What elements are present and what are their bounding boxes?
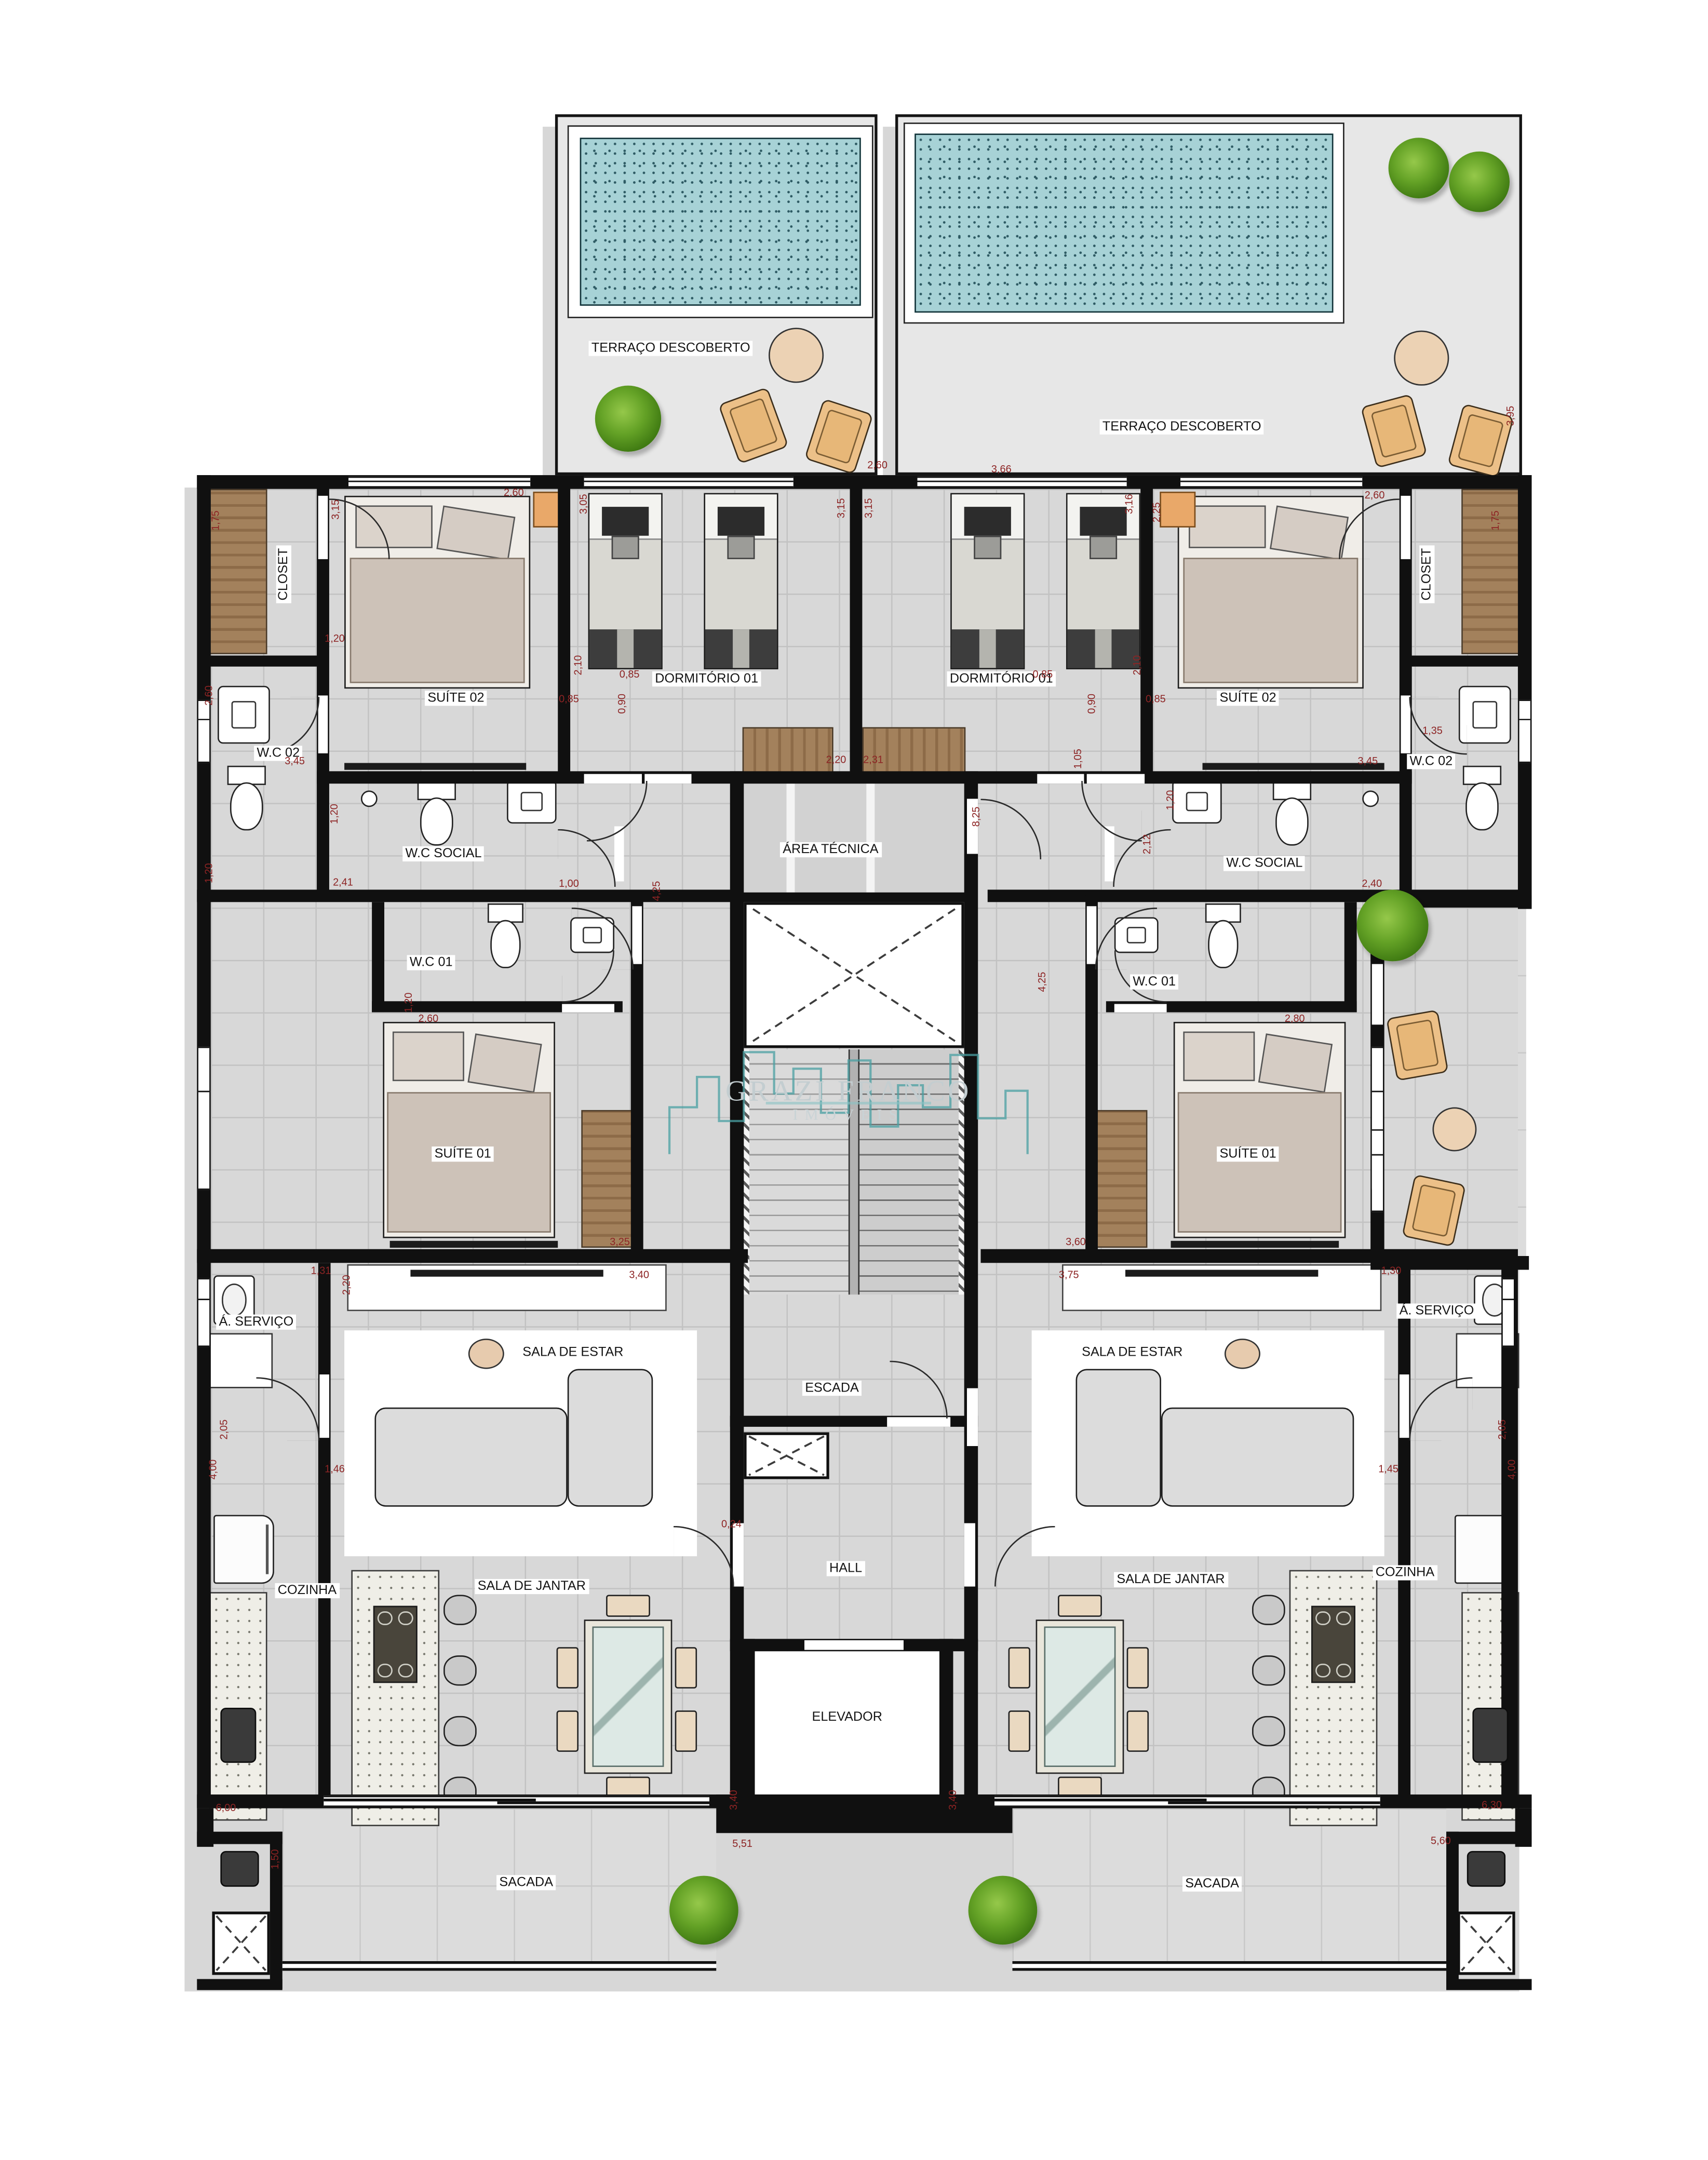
dimension-label: 2,05 (1497, 1420, 1508, 1440)
fridge-icon (213, 1515, 274, 1584)
wall-segment (1140, 485, 1153, 781)
stool-icon (1252, 1595, 1285, 1625)
dimension-label: 3,16 (1124, 494, 1135, 514)
room-label-aservico-right: Á. SERVIÇO (1396, 1303, 1476, 1318)
tv-icon (1125, 1270, 1318, 1277)
room-label-escada: ESCADA (802, 1381, 862, 1396)
dimension-label: 2,20 (826, 755, 846, 766)
wardrobe-icon (1092, 1110, 1147, 1248)
door-gap (318, 695, 328, 753)
ottoman-icon (1225, 1339, 1260, 1369)
dimension-label: 3,60 (1066, 1237, 1086, 1248)
dining-table-icon (584, 1619, 673, 1774)
kitchen-counter (209, 1592, 267, 1820)
dimension-label: 0,85 (1032, 669, 1053, 680)
dimension-label: 2,60 (867, 460, 887, 471)
door-gap (1401, 496, 1410, 559)
plant-icon (1357, 889, 1429, 961)
dimension-label: 1,35 (1422, 726, 1443, 737)
dimension-label: 3,15 (864, 498, 875, 518)
sofa-icon (1076, 1369, 1161, 1506)
door-gap (562, 1004, 614, 1013)
dimension-label: 1,75 (1490, 510, 1501, 531)
double-bed-icon (1174, 1022, 1346, 1238)
door-gap (964, 1523, 975, 1587)
dimension-label: 1,05 (1073, 749, 1084, 769)
wall-segment (981, 1249, 1518, 1263)
room-label-elevador: ELEVADOR (809, 1710, 885, 1725)
wall-segment (850, 485, 863, 781)
dimension-label: 3,40 (729, 1790, 739, 1810)
door-gap (1401, 695, 1410, 753)
wall-segment (318, 1263, 331, 1800)
dimension-label: 3,15 (836, 498, 847, 518)
dimension-label: 2,60 (504, 488, 524, 498)
dimension-label: 3,15 (331, 500, 342, 520)
dimension-label: 1,20 (404, 993, 414, 1013)
wall-segment (207, 656, 324, 667)
room-label-wcsocial-right: W.C SOCIAL (1223, 856, 1306, 871)
room-label-terraco-left: TERRAÇO DESCOBERTO (589, 341, 753, 356)
dining-chair-icon (606, 1595, 650, 1616)
watermark-line2: IMÓVEIS (658, 1108, 1039, 1124)
wall-segment (738, 893, 970, 902)
window (1503, 1278, 1514, 1347)
sofa-icon (568, 1369, 653, 1506)
floor-plan-page: GRAZI FRANCO IMÓVEIS TERRAÇO DESCOBERTOT… (0, 0, 1708, 2159)
sofa-icon (374, 1408, 567, 1507)
toilet-icon (223, 766, 270, 832)
room-label-closet-left: CLOSET (276, 545, 291, 603)
room-label-wc02-right: W.C 02 (1407, 754, 1455, 769)
stool-icon (1252, 1655, 1285, 1685)
window (198, 1278, 209, 1347)
dimension-label: 3,75 (1059, 1270, 1079, 1281)
single-bed-icon (588, 493, 663, 670)
door-gap (1105, 826, 1114, 881)
dimension-label: 0,85 (559, 694, 579, 705)
shower-icon (1362, 790, 1379, 807)
dimension-label: 4,25 (1037, 972, 1048, 992)
dimension-label: 0,85 (1146, 694, 1166, 705)
dimension-label: 3,40 (948, 1790, 959, 1810)
duct-shaft (212, 1912, 270, 1975)
dimension-label: 0,90 (1087, 694, 1098, 714)
dimension-label: 1,20 (1165, 790, 1176, 811)
room-label-suite02-right: SUÍTE 02 (1217, 691, 1279, 706)
dining-chair-icon (1008, 1647, 1030, 1689)
dining-chair-icon (1127, 1647, 1149, 1689)
stool-icon (443, 1595, 477, 1625)
dining-chair-icon (675, 1647, 697, 1689)
dining-chair-icon (557, 1647, 579, 1689)
door-gap (1372, 964, 1383, 1025)
watermark: GRAZI FRANCO IMÓVEIS (658, 1022, 1039, 1173)
door-gap (733, 1523, 744, 1587)
dimension-label: 1,31 (311, 1266, 331, 1277)
room-label-sacada-right: SACADA (1182, 1877, 1242, 1892)
dimension-label: 3,45 (1357, 756, 1378, 767)
single-bed-icon (704, 493, 778, 670)
door-gap (967, 1388, 978, 1446)
tv-icon (344, 763, 526, 770)
dimension-label: 3,25 (610, 1237, 630, 1248)
dimension-label: 2,80 (1285, 1014, 1305, 1024)
tv-icon (1171, 1241, 1339, 1248)
room-label-jantar-right: SALA DE JANTAR (1114, 1572, 1228, 1587)
dimension-label: 6,30 (1482, 1800, 1502, 1811)
dimension-label: 0,24 (721, 1519, 742, 1530)
sofa-icon (1161, 1408, 1354, 1507)
dimension-label: 1,20 (329, 804, 340, 824)
room-label-cozinha-right: COZINHA (1373, 1565, 1437, 1580)
dining-chair-icon (1127, 1710, 1149, 1752)
room-label-suite01-right: SUÍTE 01 (1217, 1146, 1279, 1162)
wall-segment (1446, 1979, 1531, 1990)
floor-plan-drawing: GRAZI FRANCO IMÓVEIS TERRAÇO DESCOBERTOT… (0, 0, 1708, 2159)
window (1180, 477, 1362, 488)
room-label-salaestar-right: SALA DE ESTAR (1079, 1345, 1186, 1360)
dimension-label: 3,95 (1505, 406, 1516, 426)
watermark-underline (766, 1102, 931, 1104)
plant-icon (595, 386, 661, 452)
patio-table-icon (1432, 1108, 1476, 1152)
dimension-label: 2,60 (204, 685, 215, 706)
wall-segment (988, 889, 1522, 902)
double-bed-icon (383, 1022, 555, 1238)
door-gap (614, 826, 624, 881)
wall-segment (1446, 1832, 1531, 1844)
room-label-wc01-right: W.C 01 (1130, 975, 1178, 990)
wall-segment (197, 1249, 748, 1263)
dimension-label: 6,00 (216, 1803, 236, 1814)
door-gap (644, 774, 691, 784)
window (348, 477, 530, 488)
toilet-icon (1269, 781, 1315, 847)
duct-shaft (744, 1432, 829, 1479)
tv-icon (390, 1241, 558, 1248)
room-label-salaestar-left: SALA DE ESTAR (520, 1345, 626, 1360)
dimension-label: 1,50 (270, 1849, 281, 1869)
dimension-label: 4,00 (1507, 1460, 1518, 1480)
room-label-closet-right: CLOSET (1419, 545, 1434, 603)
door-gap (1087, 906, 1097, 964)
dimension-label: 3,40 (629, 1270, 649, 1281)
room-label-aservico-left: Á. SERVIÇO (216, 1315, 296, 1330)
dimension-label: 2,60 (419, 1014, 439, 1024)
dimension-label: 3,45 (285, 756, 305, 767)
dimension-label: 0,90 (617, 694, 628, 714)
dining-chair-icon (557, 1710, 579, 1752)
room-label-suite02-left: SUÍTE 02 (425, 691, 487, 706)
lounge-chair-icon (1386, 1009, 1448, 1081)
dimension-label: 0,85 (620, 669, 640, 680)
single-bed-icon (1066, 493, 1140, 670)
wall-segment (197, 1979, 282, 1990)
shower-icon (361, 790, 378, 807)
plant-icon (1389, 138, 1449, 198)
wall-segment (1398, 1263, 1410, 1800)
dimension-label: 5,60 (1431, 1836, 1451, 1847)
wall-segment (1446, 1832, 1459, 1989)
dimension-label: 1,46 (325, 1464, 345, 1475)
wall-segment (197, 1832, 282, 1844)
dimension-label: 2,12 (1142, 834, 1153, 855)
dimension-label: 3,05 (579, 494, 589, 514)
pool-right (914, 133, 1333, 313)
window (1372, 1129, 1383, 1212)
room-label-terraco-right: TERRAÇO DESCOBERTO (1100, 420, 1264, 435)
plant-icon (669, 1876, 738, 1945)
wall-segment (372, 902, 384, 1012)
dimension-label: 8,25 (971, 806, 982, 827)
stool-icon (1252, 1716, 1285, 1746)
dark-sink-icon (220, 1851, 259, 1887)
plant-icon (1449, 152, 1510, 212)
dimension-label: 1,75 (211, 510, 222, 531)
dimension-label: 2,10 (1132, 655, 1143, 676)
wardrobe-icon (862, 727, 965, 778)
dining-table-icon (1036, 1619, 1124, 1774)
toilet-icon (413, 781, 460, 847)
door-gap (887, 1417, 950, 1427)
door-gap (1037, 774, 1084, 784)
dining-chair-icon (1008, 1710, 1030, 1752)
window (917, 477, 1126, 488)
cooktop-icon (373, 1606, 418, 1683)
dark-sink-icon (1472, 1708, 1508, 1763)
balcony-rail (1013, 1961, 1447, 1971)
dining-chair-icon (675, 1710, 697, 1752)
sink-icon (1172, 779, 1221, 824)
window (584, 477, 794, 488)
sliding-door (994, 1796, 1380, 1807)
window (198, 699, 209, 763)
door-gap (318, 496, 328, 559)
elevator-door (804, 1640, 904, 1650)
stool-icon (443, 1716, 477, 1746)
dimension-label: 1,30 (1381, 1266, 1402, 1277)
room-label-hall: HALL (827, 1561, 865, 1576)
dimension-label: 4,00 (208, 1460, 219, 1480)
door-gap (632, 906, 642, 964)
dimension-label: 2,41 (333, 878, 353, 888)
nightstand-icon (1160, 492, 1195, 528)
toilet-icon (485, 903, 527, 969)
toilet-icon (1203, 903, 1244, 969)
door-gap (1400, 1374, 1409, 1438)
dimension-label: 3,66 (991, 464, 1012, 475)
pilaster (866, 784, 875, 893)
dimension-label: 2,40 (1362, 879, 1382, 889)
room-label-cozinha-left: COZINHA (275, 1583, 339, 1598)
dark-sink-icon (220, 1708, 256, 1763)
double-bed-icon (1178, 496, 1364, 688)
patio-table-icon (769, 328, 824, 383)
tv-icon (410, 1270, 603, 1277)
dimension-label: 4,25 (652, 881, 663, 901)
wall-segment (317, 771, 1412, 784)
door-gap (319, 1374, 329, 1438)
single-bed-icon (950, 493, 1025, 670)
dimension-label: 1,20 (204, 863, 215, 883)
dimension-label: 2,31 (863, 755, 883, 766)
wardrobe-icon (743, 727, 833, 778)
sliding-door (324, 1796, 709, 1807)
wall-segment (939, 1639, 953, 1808)
wall-segment (741, 1639, 755, 1808)
dimension-label: 2,10 (573, 655, 584, 676)
room-label-suite01-left: SUÍTE 01 (432, 1146, 494, 1162)
wall-segment (558, 485, 570, 781)
wall-segment (1344, 902, 1357, 1012)
room-label-wcsocial-left: W.C SOCIAL (402, 846, 485, 861)
duct-shaft (1457, 1912, 1515, 1975)
dining-chair-icon (1058, 1595, 1102, 1616)
window (198, 1047, 209, 1190)
pilaster (787, 784, 795, 893)
dimension-label: 1,00 (559, 879, 579, 889)
tv-icon (1203, 763, 1384, 770)
plant-icon (969, 1876, 1038, 1945)
dark-sink-icon (1467, 1851, 1505, 1887)
dimension-label: 2,25 (1151, 502, 1162, 522)
toilet-icon (1459, 766, 1505, 832)
wardrobe-icon (581, 1110, 636, 1248)
window (1519, 699, 1530, 763)
room-label-wc01-left: W.C 01 (407, 955, 455, 970)
room-label-area-tecnica: ÁREA TÉCNICA (780, 842, 881, 857)
room-label-sacada-left: SACADA (496, 1875, 556, 1890)
ottoman-icon (468, 1339, 504, 1369)
patio-table-icon (1394, 331, 1449, 386)
wall-segment (1405, 656, 1522, 667)
dimension-label: 2,60 (1365, 490, 1385, 501)
sink-icon (507, 779, 556, 824)
door-gap (1114, 1004, 1167, 1013)
dimension-label: 1,20 (325, 633, 345, 644)
dimension-label: 5,51 (732, 1839, 752, 1850)
room-label-dormitorio01-left: DORMITÓRIO 01 (652, 671, 761, 686)
area-tecnica-floor (744, 784, 964, 893)
wall-segment (1518, 475, 1532, 909)
room-label-jantar-left: SALA DE JANTAR (475, 1579, 588, 1594)
balcony-rail (283, 1961, 717, 1971)
wall-segment (964, 771, 978, 1808)
pool-left (580, 138, 861, 306)
dimension-label: 1,45 (1378, 1464, 1398, 1475)
stool-icon (443, 1655, 477, 1685)
cooktop-icon (1311, 1606, 1355, 1683)
dimension-label: 2,05 (219, 1420, 230, 1440)
dimension-label: 2,20 (342, 1275, 353, 1295)
